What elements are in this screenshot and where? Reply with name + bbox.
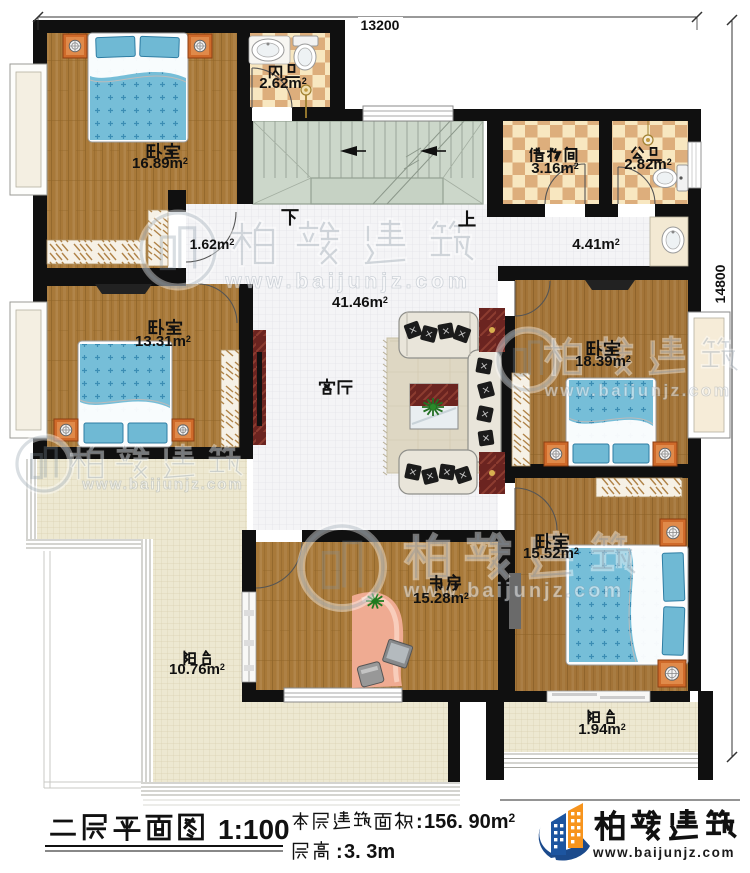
svg-text:1:100: 1:100 [218, 814, 290, 845]
svg-text:16.89m2: 16.89m2 [132, 155, 188, 172]
svg-text:156. 90m2: 156. 90m2 [424, 811, 516, 833]
svg-text:3.16m2: 3.16m2 [531, 160, 579, 177]
svg-text:www.baijunjz.com: www.baijunjz.com [81, 476, 243, 493]
svg-text:14800: 14800 [712, 264, 728, 303]
svg-text::: : [336, 841, 343, 863]
svg-text:www.baijunjz.com: www.baijunjz.com [544, 381, 732, 400]
svg-text:13.31m2: 13.31m2 [135, 333, 191, 350]
svg-text:18.39m2: 18.39m2 [575, 353, 631, 370]
svg-text:2.82m2: 2.82m2 [624, 156, 672, 173]
svg-text:10.76m2: 10.76m2 [169, 661, 225, 678]
svg-text:www.baijunjz.com: www.baijunjz.com [224, 270, 470, 293]
svg-text:13200: 13200 [361, 17, 400, 33]
svg-text:1.94m2: 1.94m2 [578, 721, 626, 738]
svg-text:15.52m2: 15.52m2 [523, 545, 579, 562]
svg-text:41.46m2: 41.46m2 [332, 294, 388, 311]
svg-text:4.41m2: 4.41m2 [572, 236, 620, 253]
svg-text:15.28m2: 15.28m2 [413, 590, 469, 607]
svg-text::: : [416, 811, 423, 833]
svg-text:2.62m2: 2.62m2 [259, 75, 307, 92]
svg-text:3. 3m: 3. 3m [344, 841, 395, 863]
svg-text:www.baijunjz.com: www.baijunjz.com [592, 845, 735, 860]
svg-text:1.62m2: 1.62m2 [190, 236, 235, 252]
